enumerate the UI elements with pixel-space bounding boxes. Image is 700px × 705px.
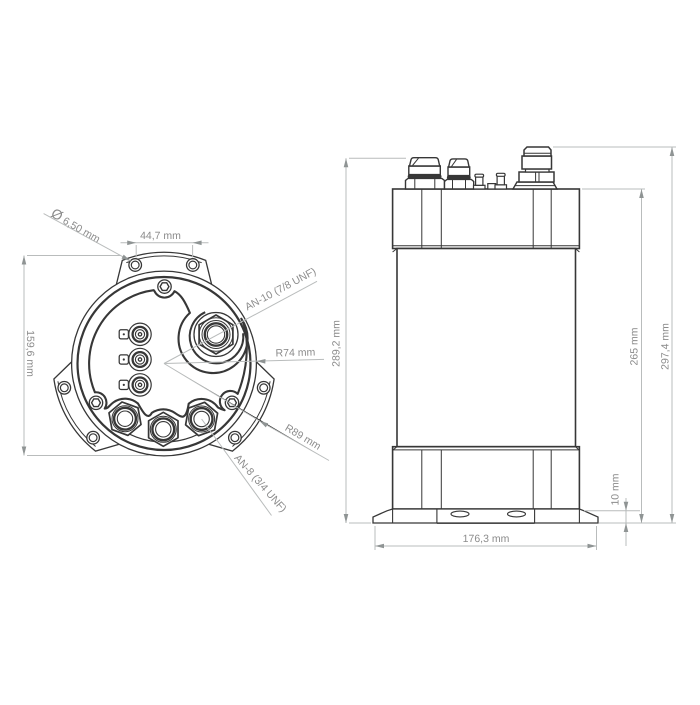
svg-text:R74 mm: R74 mm [275,346,315,359]
svg-text:297,4 mm: 297,4 mm [660,323,672,370]
svg-text:159,6 mm: 159,6 mm [24,330,36,377]
svg-text:289,2 mm: 289,2 mm [331,320,343,367]
svg-text:265 mm: 265 mm [629,327,641,365]
svg-text:44,7 mm: 44,7 mm [140,230,181,242]
svg-text:10 mm: 10 mm [610,473,622,505]
svg-text:176,3 mm: 176,3 mm [463,533,510,545]
